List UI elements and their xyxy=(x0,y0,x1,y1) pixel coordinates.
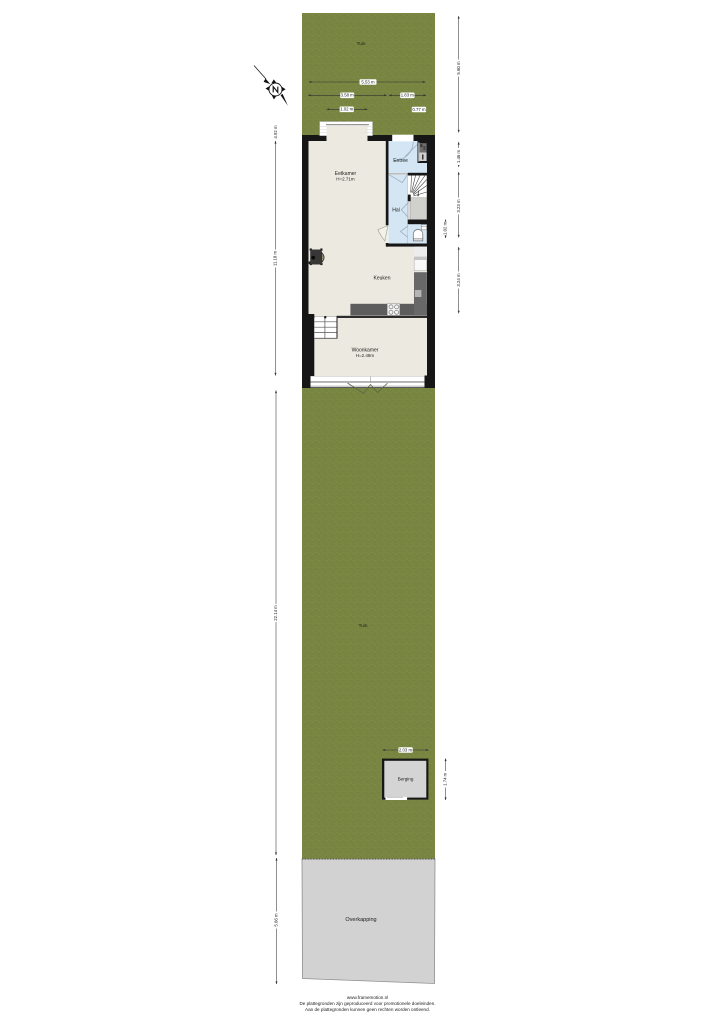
svg-text:Keuken: Keuken xyxy=(374,275,391,281)
svg-text:5.66 m: 5.66 m xyxy=(274,913,279,927)
svg-text:11.18 m: 11.18 m xyxy=(273,250,278,266)
svg-text:Tuin: Tuin xyxy=(357,41,366,46)
svg-text:Berging: Berging xyxy=(398,777,414,782)
svg-text:H=2.48m: H=2.48m xyxy=(356,353,375,358)
svg-text:1.46 m: 1.46 m xyxy=(456,150,461,164)
svg-text:2.03 m: 2.03 m xyxy=(399,747,413,752)
svg-text:5.60 m: 5.60 m xyxy=(456,61,461,75)
svg-text:Tuin: Tuin xyxy=(359,623,368,628)
svg-text:www.framemotion.nl: www.framemotion.nl xyxy=(347,995,388,1000)
svg-text:0.77 m: 0.77 m xyxy=(412,107,426,112)
svg-text:22.14 m: 22.14 m xyxy=(273,605,278,621)
svg-text:4.92 m: 4.92 m xyxy=(273,125,278,139)
svg-text:Hal: Hal xyxy=(392,208,400,214)
svg-text:1.74 m: 1.74 m xyxy=(443,772,448,786)
svg-text:Entree: Entree xyxy=(393,158,408,164)
svg-text:3.58 m: 3.58 m xyxy=(341,93,355,98)
svg-text:De plattegronden zijn geproduc: De plattegronden zijn geproduceerd voor … xyxy=(299,1001,435,1006)
svg-text:H=2.71m: H=2.71m xyxy=(336,177,355,182)
svg-text:Overkapping: Overkapping xyxy=(345,917,376,923)
svg-text:3.23 m: 3.23 m xyxy=(456,199,461,213)
svg-text:Aan de plattegronden kunnen ge: Aan de plattegronden kunnen geen rechten… xyxy=(305,1007,430,1012)
svg-text:1.02 m: 1.02 m xyxy=(443,221,448,235)
svg-text:3.24 m: 3.24 m xyxy=(456,273,461,287)
svg-text:5.53 m: 5.53 m xyxy=(361,79,375,84)
svg-text:1.83 m: 1.83 m xyxy=(401,93,415,98)
svg-text:1.02 m: 1.02 m xyxy=(340,107,354,112)
